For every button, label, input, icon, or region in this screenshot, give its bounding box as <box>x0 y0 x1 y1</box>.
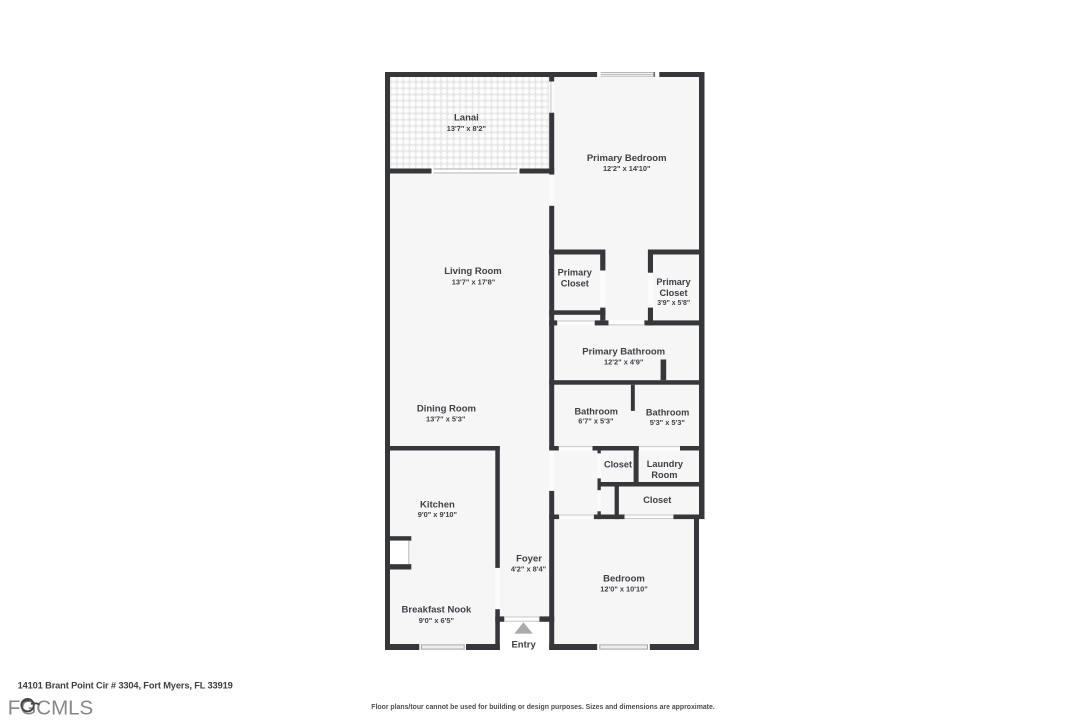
svg-text:Foyer: Foyer <box>516 554 542 565</box>
svg-text:Primary Bedroom: Primary Bedroom <box>587 153 667 164</box>
svg-text:Primary Bathroom: Primary Bathroom <box>582 347 665 358</box>
svg-text:Bathroom: Bathroom <box>575 406 618 416</box>
svg-text:Lanai: Lanai <box>454 113 479 124</box>
svg-text:9'0" x 6'5": 9'0" x 6'5" <box>419 616 455 625</box>
svg-text:Room: Room <box>651 470 677 480</box>
svg-text:FGCMLS: FGCMLS <box>8 697 93 720</box>
svg-text:Living Room: Living Room <box>444 266 502 277</box>
svg-text:13'7" x 17'8": 13'7" x 17'8" <box>452 278 496 287</box>
svg-text:Dining Room: Dining Room <box>417 403 476 414</box>
svg-text:12'0" x 10'10": 12'0" x 10'10" <box>600 584 648 593</box>
svg-text:Closet: Closet <box>604 459 632 469</box>
svg-text:14101 Brant Point Cir # 3304,: 14101 Brant Point Cir # 3304, Fort Myers… <box>18 680 233 690</box>
svg-text:12'2" x 4'9": 12'2" x 4'9" <box>604 358 644 367</box>
svg-text:5'3" x 5'3": 5'3" x 5'3" <box>650 418 686 427</box>
svg-text:Floor plans/tour cannot be use: Floor plans/tour cannot be used for buil… <box>371 704 715 711</box>
svg-text:9'0" x 9'10": 9'0" x 9'10" <box>418 510 458 519</box>
svg-text:Closet: Closet <box>561 278 589 288</box>
svg-text:Entry: Entry <box>511 640 536 651</box>
svg-text:3'9" x 5'8": 3'9" x 5'8" <box>657 300 690 307</box>
svg-text:Primary: Primary <box>558 268 593 278</box>
svg-text:Closet: Closet <box>659 288 687 298</box>
svg-text:Breakfast Nook: Breakfast Nook <box>402 604 472 615</box>
svg-text:Bedroom: Bedroom <box>603 574 645 585</box>
svg-text:6'7" x 5'3": 6'7" x 5'3" <box>578 417 614 426</box>
svg-text:4'2" x 8'4": 4'2" x 8'4" <box>511 565 547 574</box>
svg-text:Kitchen: Kitchen <box>420 499 455 510</box>
svg-text:Closet: Closet <box>643 495 671 505</box>
svg-text:13'7" x 8'2": 13'7" x 8'2" <box>447 124 487 133</box>
svg-text:13'7" x 5'3": 13'7" x 5'3" <box>426 415 466 424</box>
svg-text:12'2" x 14'10": 12'2" x 14'10" <box>603 164 651 173</box>
svg-text:Bathroom: Bathroom <box>646 407 689 417</box>
svg-text:Laundry: Laundry <box>647 459 684 469</box>
svg-text:Primary: Primary <box>656 277 691 287</box>
